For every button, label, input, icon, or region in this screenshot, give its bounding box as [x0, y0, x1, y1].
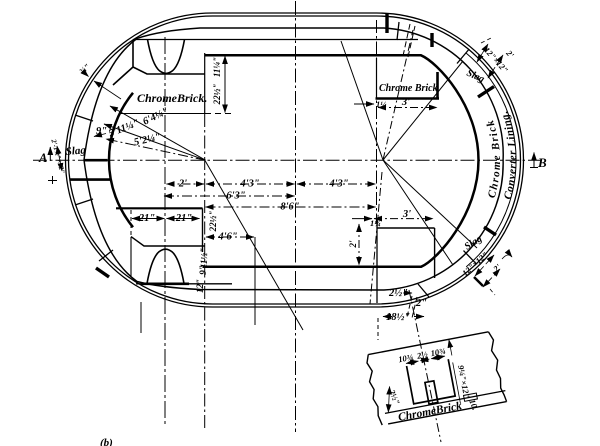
svg-text:21": 21": [138, 213, 156, 224]
svg-text:6'4¼": 6'4¼": [141, 106, 170, 128]
svg-text:¾": ¾": [77, 61, 92, 76]
svg-text:(b): (b): [100, 437, 113, 446]
svg-text:2'-1½"×12": 2'-1½"×12": [49, 137, 66, 174]
svg-text:2': 2': [178, 179, 187, 190]
svg-text:4'3": 4'3": [328, 179, 348, 190]
svg-text:9": 9": [96, 126, 107, 137]
svg-text:1¼: 1¼: [376, 99, 387, 109]
svg-text:9": 9": [198, 265, 208, 275]
svg-text:10.: 10.: [467, 398, 480, 411]
svg-text:B: B: [537, 155, 547, 170]
svg-text:5'2¼": 5'2¼": [133, 132, 162, 149]
svg-text:Chrome Brick: Chrome Brick: [379, 83, 438, 94]
svg-text:4'3": 4'3": [239, 179, 259, 190]
svg-text:2½": 2½": [388, 288, 408, 299]
svg-text:2': 2': [348, 240, 358, 249]
svg-text:18½": 18½": [386, 312, 410, 323]
svg-text:ChromeBrick.: ChromeBrick.: [137, 91, 207, 105]
svg-text:2": 2": [415, 298, 427, 309]
svg-text:3': 3': [401, 97, 410, 108]
svg-text:22½": 22½": [208, 211, 218, 233]
svg-text:11¼": 11¼": [212, 57, 222, 77]
svg-text:4'6": 4'6": [217, 232, 237, 243]
svg-text:Slag: Slag: [65, 144, 87, 158]
svg-text:8'6": 8'6": [280, 202, 299, 213]
svg-text:12": 12": [195, 279, 205, 293]
svg-text:11½": 11½": [199, 248, 209, 268]
svg-text:6'3": 6'3": [226, 191, 245, 202]
svg-text:21": 21": [175, 213, 193, 224]
svg-text:A: A: [38, 151, 47, 165]
svg-text:22½": 22½": [212, 84, 222, 106]
svg-text:3': 3': [402, 209, 411, 220]
svg-text:2': 2': [490, 261, 503, 274]
svg-text:2': 2': [504, 47, 517, 60]
svg-text:1¼: 1¼: [370, 218, 381, 228]
svg-text:12"×12": 12"×12": [482, 45, 511, 75]
